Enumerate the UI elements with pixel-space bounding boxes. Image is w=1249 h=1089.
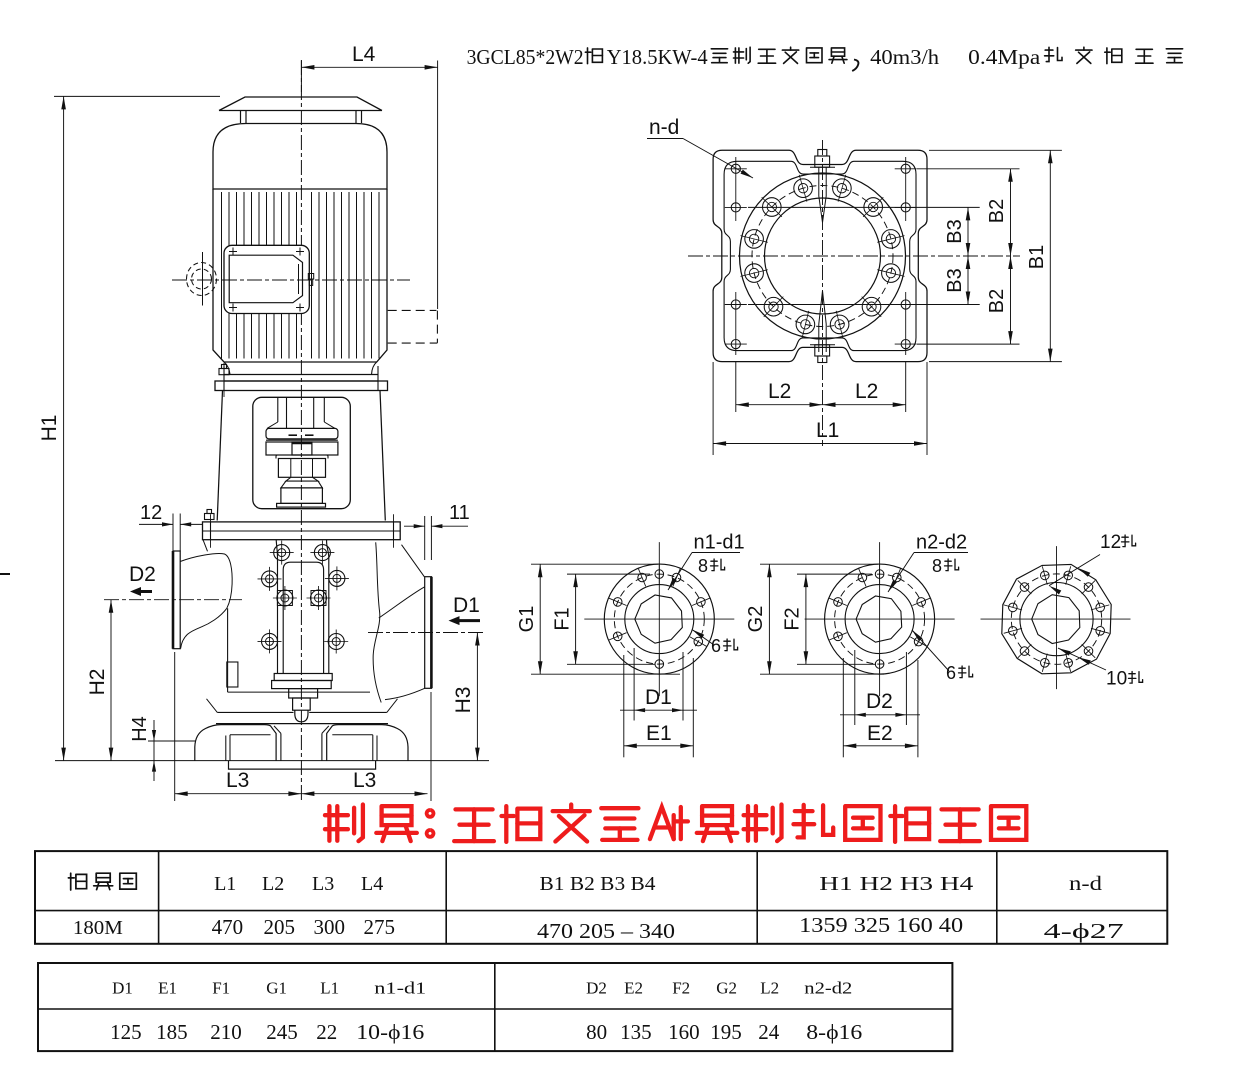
svg-text:E2: E2 [624,979,643,998]
svg-text:n2-d2: n2-d2 [916,532,967,554]
svg-text:12: 12 [1100,532,1121,553]
svg-text:80: 80 [586,1020,607,1044]
svg-text:Y18.5KW-4: Y18.5KW-4 [607,45,708,69]
svg-text:10-ϕ16: 10-ϕ16 [356,1020,424,1044]
svg-text:3GCL85*2W2: 3GCL85*2W2 [467,45,584,69]
svg-text:8-ϕ16: 8-ϕ16 [806,1020,862,1044]
svg-text:300: 300 [314,915,346,939]
svg-text:H1: H1 [38,415,61,442]
svg-text:1359 325 160 40: 1359 325 160 40 [799,913,963,937]
svg-text:F1: F1 [552,607,574,630]
svg-text:L2: L2 [768,380,791,403]
svg-text:470: 470 [212,915,244,939]
svg-text:245: 245 [266,1020,298,1044]
svg-text:n1-d1: n1-d1 [374,979,426,998]
svg-text:24: 24 [758,1020,780,1044]
svg-text:B2: B2 [986,289,1008,313]
svg-text:L1: L1 [816,419,839,442]
svg-text:E1: E1 [158,979,177,998]
svg-text:D2: D2 [866,690,893,713]
svg-text:H3: H3 [452,687,475,714]
svg-text:L3: L3 [312,873,334,895]
svg-text:L2: L2 [760,979,779,998]
svg-text:185: 185 [156,1020,188,1044]
svg-text:8: 8 [698,556,708,576]
svg-text:H2: H2 [86,669,109,696]
svg-text:L1: L1 [214,873,236,895]
svg-text:G2: G2 [716,979,737,998]
svg-text:D1: D1 [453,594,480,617]
svg-text:6: 6 [946,663,956,683]
svg-text:B3: B3 [944,219,966,243]
svg-text:D1: D1 [112,979,133,998]
svg-text:L1: L1 [320,979,339,998]
svg-text:470 205 – 340: 470 205 – 340 [537,919,675,943]
svg-text:H4: H4 [129,716,151,742]
svg-text:D2: D2 [129,563,156,586]
svg-text:F1: F1 [212,979,230,998]
svg-text:195: 195 [710,1020,742,1044]
svg-text:22: 22 [316,1020,337,1044]
svg-text:D1: D1 [645,686,672,709]
svg-text:E1: E1 [646,722,672,745]
svg-text:11: 11 [449,502,470,524]
svg-text:8: 8 [932,556,942,576]
svg-text:4-ϕ27: 4-ϕ27 [1044,919,1124,943]
svg-text:180M: 180M [73,917,123,939]
svg-text:40m3/h: 40m3/h [870,45,940,69]
svg-text:L3: L3 [226,769,249,792]
svg-text:F2: F2 [782,607,804,630]
svg-text:160: 160 [668,1020,700,1044]
svg-text:B3: B3 [944,268,966,292]
svg-text:135: 135 [620,1020,652,1044]
svg-text:F2: F2 [672,979,690,998]
svg-text:12: 12 [140,502,162,524]
svg-text:G2: G2 [745,606,767,633]
svg-text:n2-d2: n2-d2 [804,979,852,998]
svg-text:L2: L2 [262,873,284,895]
svg-text:0.4Mpa: 0.4Mpa [968,45,1041,69]
svg-text:n-d: n-d [1069,873,1102,895]
svg-text:n-d: n-d [649,116,679,139]
svg-text:210: 210 [210,1020,242,1044]
svg-text:L2: L2 [855,380,878,403]
svg-text:B1 B2 B3 B4: B1 B2 B3 B4 [540,873,656,895]
svg-text:10: 10 [1106,669,1127,690]
svg-text:125: 125 [110,1020,142,1044]
svg-text:205: 205 [264,915,296,939]
svg-text:B2: B2 [986,199,1008,223]
svg-text:n1-d1: n1-d1 [694,532,745,554]
svg-text:L3: L3 [353,769,376,792]
svg-text:D2: D2 [586,979,607,998]
svg-text:B1: B1 [1026,245,1048,269]
svg-text:H1 H2 H3 H4: H1 H2 H3 H4 [819,873,973,895]
svg-text:L4: L4 [352,43,376,66]
svg-text:275: 275 [364,915,396,939]
svg-text:6: 6 [711,636,721,656]
svg-text:L4: L4 [361,873,383,895]
svg-text:G1: G1 [266,979,287,998]
svg-text:G1: G1 [516,606,538,633]
svg-text:E2: E2 [867,722,893,745]
